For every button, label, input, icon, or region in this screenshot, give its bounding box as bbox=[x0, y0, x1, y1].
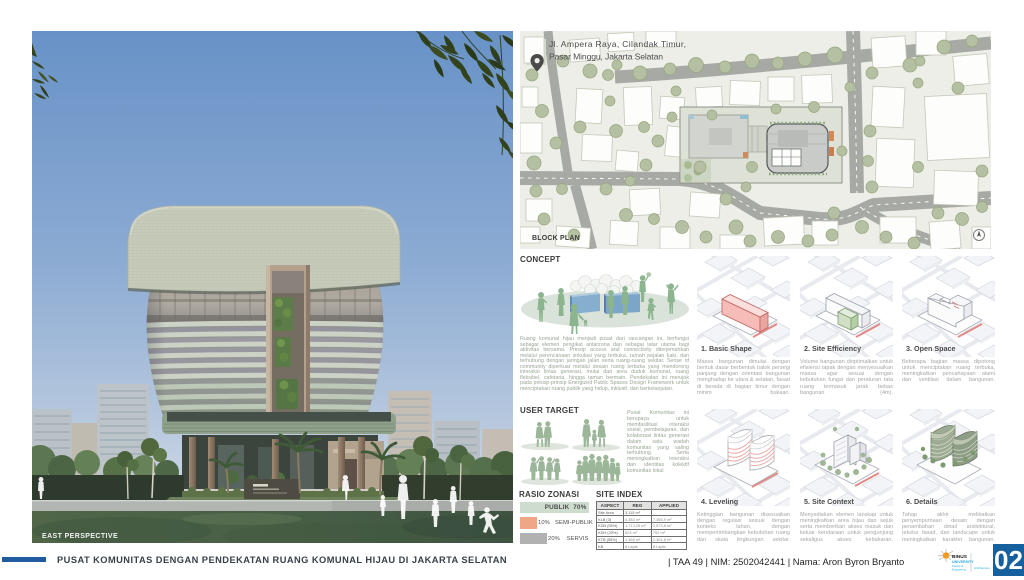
svg-text:Architecture: Architecture bbox=[974, 566, 990, 570]
svg-text:Jl. Ampera Raya, Cilandak Timu: Jl. Ampera Raya, Cilandak Timur, bbox=[549, 39, 686, 49]
svg-text:Faculty of: Faculty of bbox=[952, 564, 964, 568]
svg-text:Engineering: Engineering bbox=[952, 568, 966, 572]
svg-text:Pasar Minggu, Jakarta Selatan: Pasar Minggu, Jakarta Selatan bbox=[549, 52, 663, 62]
svg-text:EAST PERSPECTIVE: EAST PERSPECTIVE bbox=[42, 533, 118, 540]
